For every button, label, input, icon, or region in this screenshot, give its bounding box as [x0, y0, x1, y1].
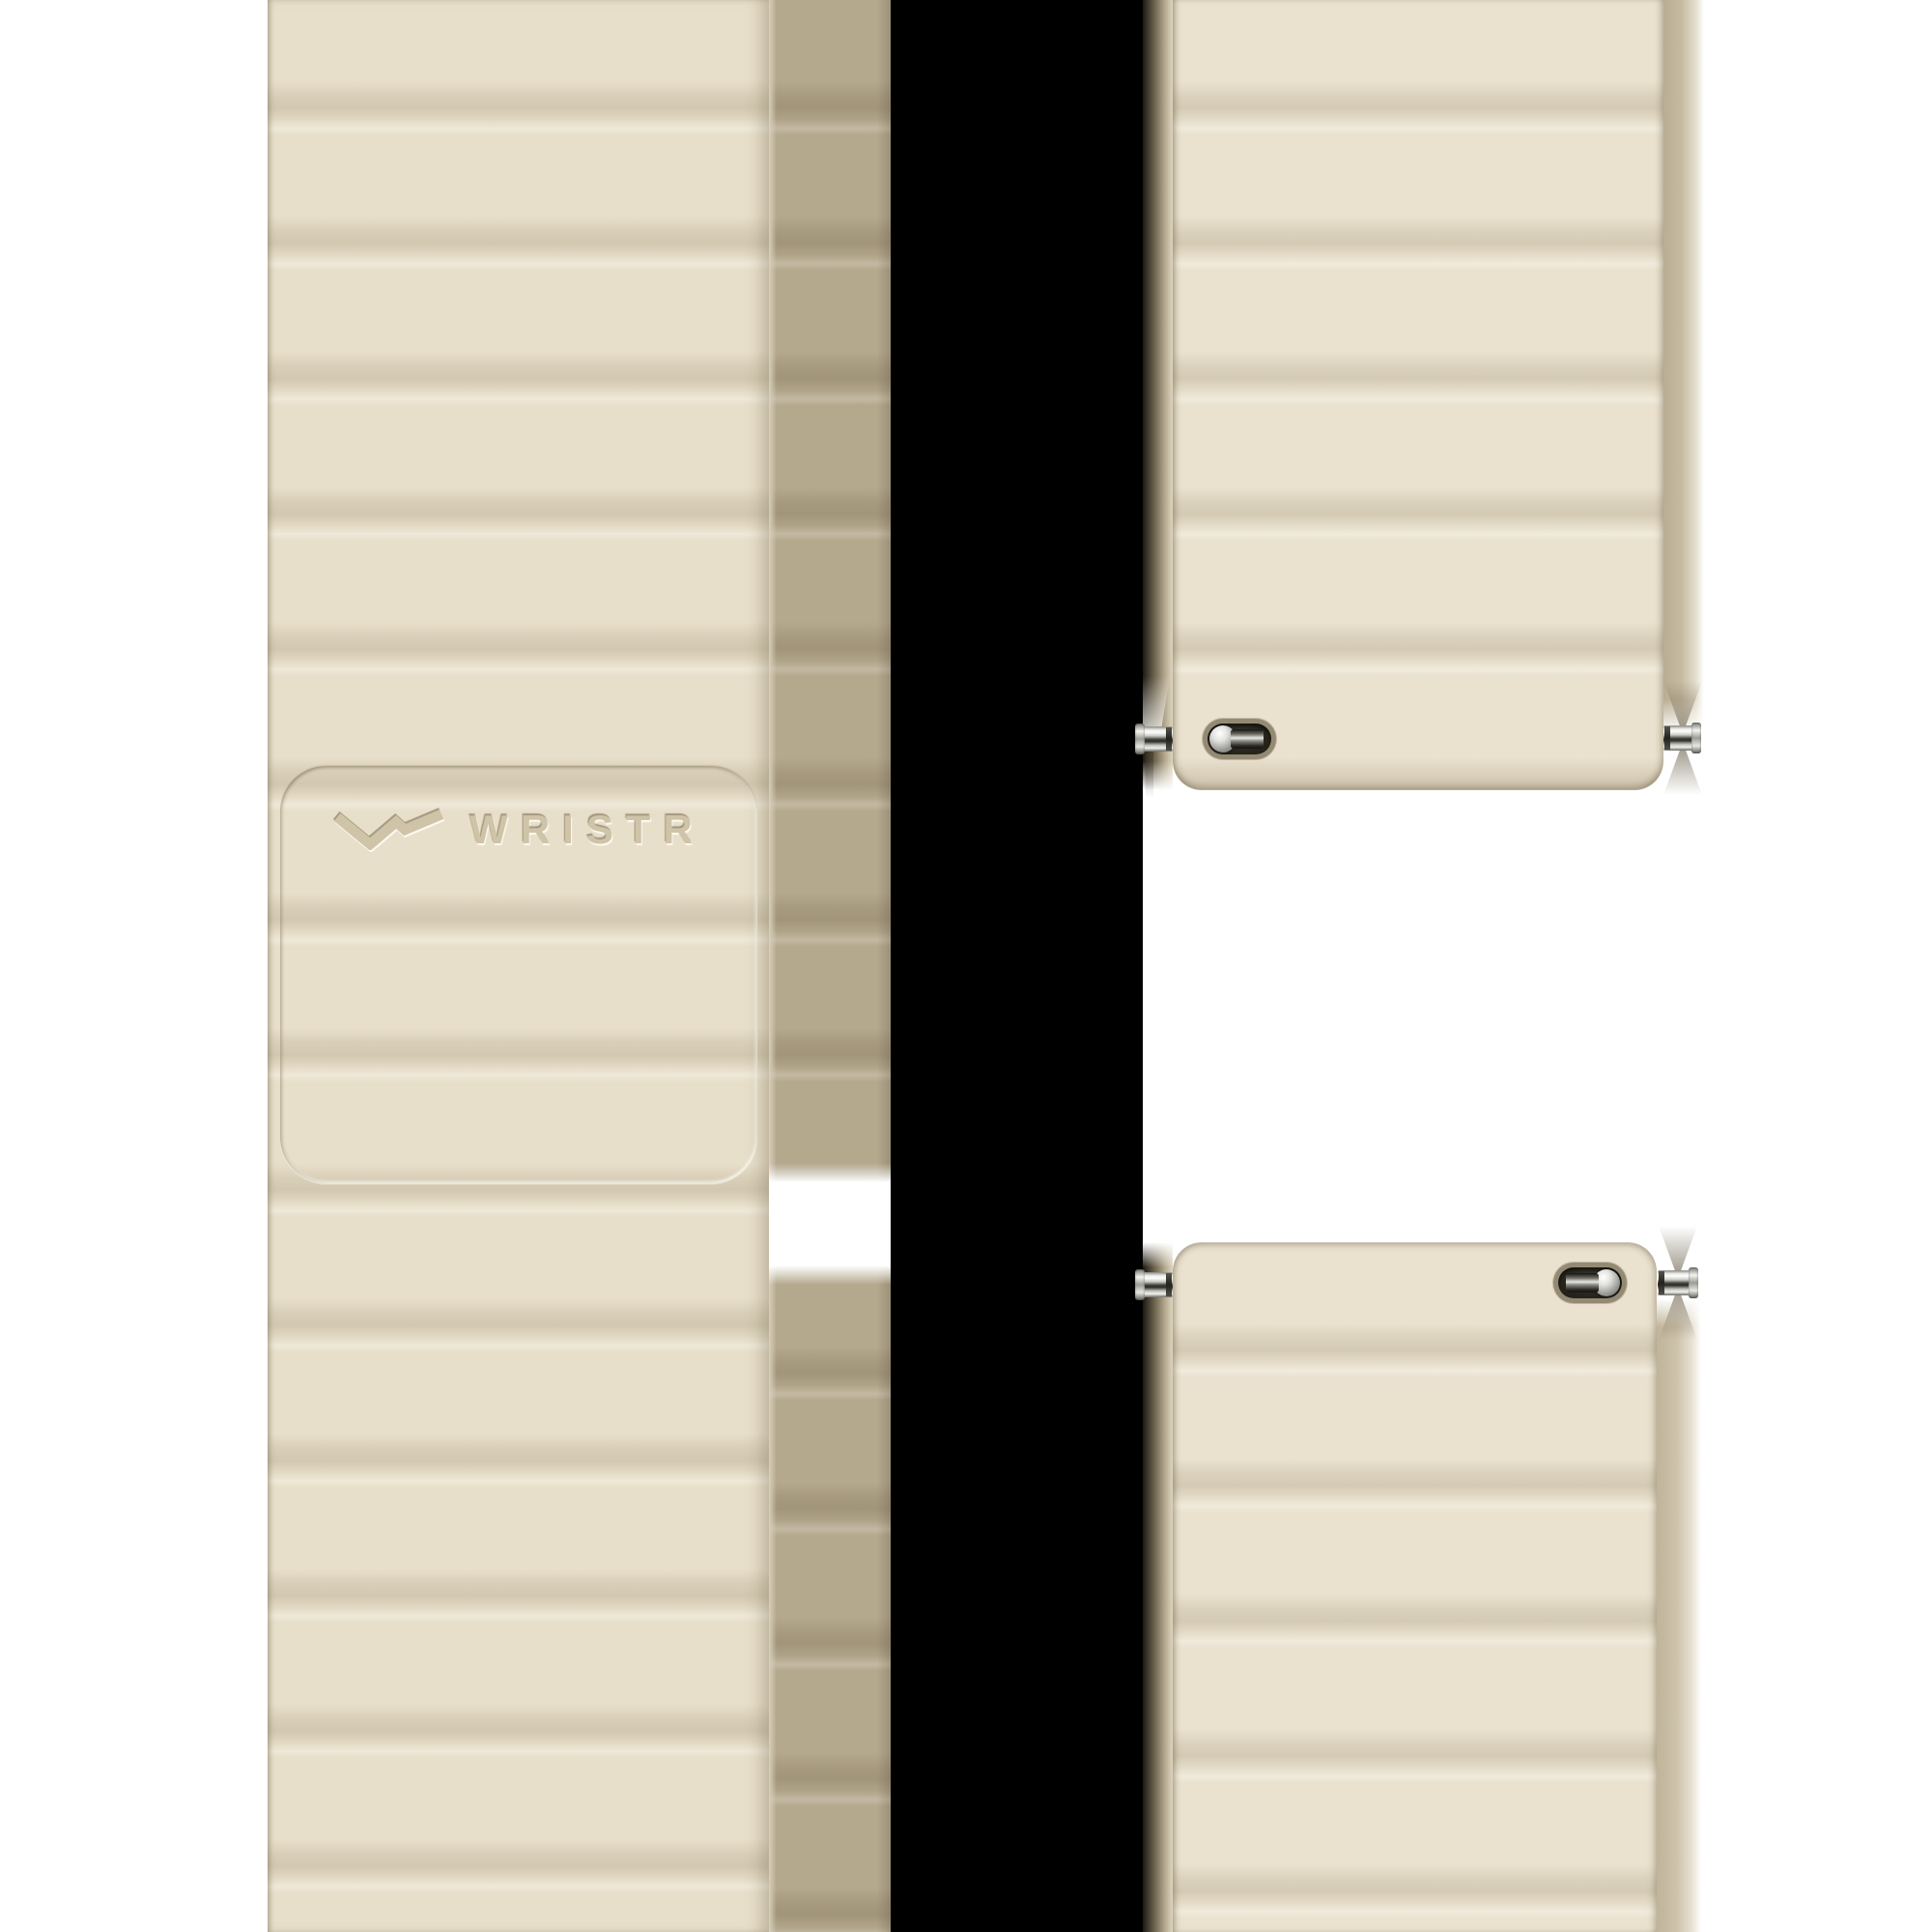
- upper-right-pin-shadow-bottom: [1663, 751, 1702, 795]
- quick-release-lever: [1566, 1273, 1599, 1293]
- spring-bar-pin-upper-right: [1663, 725, 1700, 751]
- upper-piece-right-shadow: [1663, 0, 1704, 732]
- quick-release-lever: [1231, 729, 1264, 749]
- black-divider-panel: [891, 0, 1143, 1932]
- front-strap-side-shadow-upper: [769, 0, 891, 1182]
- brand-logo: WRISTR: [332, 807, 705, 853]
- watch-band-front-strap: WRISTR: [268, 0, 769, 1932]
- pin-ring: [1166, 1273, 1172, 1296]
- pin-flange: [1135, 1269, 1145, 1300]
- pin-ring: [1664, 726, 1670, 750]
- upper-piece-left-shadow: [1143, 0, 1173, 790]
- brand-logo-text: WRISTR: [469, 807, 705, 853]
- spring-bar-pin-upper-left: [1136, 726, 1173, 752]
- pin-flange: [1691, 723, 1701, 753]
- watch-band-lower-back-piece: [1173, 1242, 1657, 1932]
- w-chevron-icon: [332, 810, 446, 850]
- front-strap-side-shadow-lower: [769, 1265, 891, 1932]
- product-photo-canvas: WRISTR: [0, 0, 1932, 1932]
- pin-flange: [1689, 1267, 1698, 1298]
- pin-flange: [1135, 724, 1145, 754]
- quick-release-slot-upper: [1207, 724, 1271, 754]
- lower-right-pin-shadow-top: [1659, 1226, 1697, 1270]
- quick-release-slot-lower: [1558, 1267, 1622, 1298]
- lower-piece-left-shadow: [1143, 1242, 1173, 1932]
- pin-ring: [1166, 727, 1172, 751]
- pin-ring: [1659, 1271, 1664, 1294]
- spring-bar-pin-lower-left: [1136, 1272, 1173, 1297]
- brand-plate: WRISTR: [280, 766, 757, 1183]
- watch-band-upper-back-piece: [1173, 0, 1663, 790]
- upper-left-pin-shadow: [1146, 752, 1153, 798]
- lower-piece-right-shadow: [1657, 1298, 1701, 1932]
- spring-bar-pin-lower-right: [1658, 1270, 1697, 1295]
